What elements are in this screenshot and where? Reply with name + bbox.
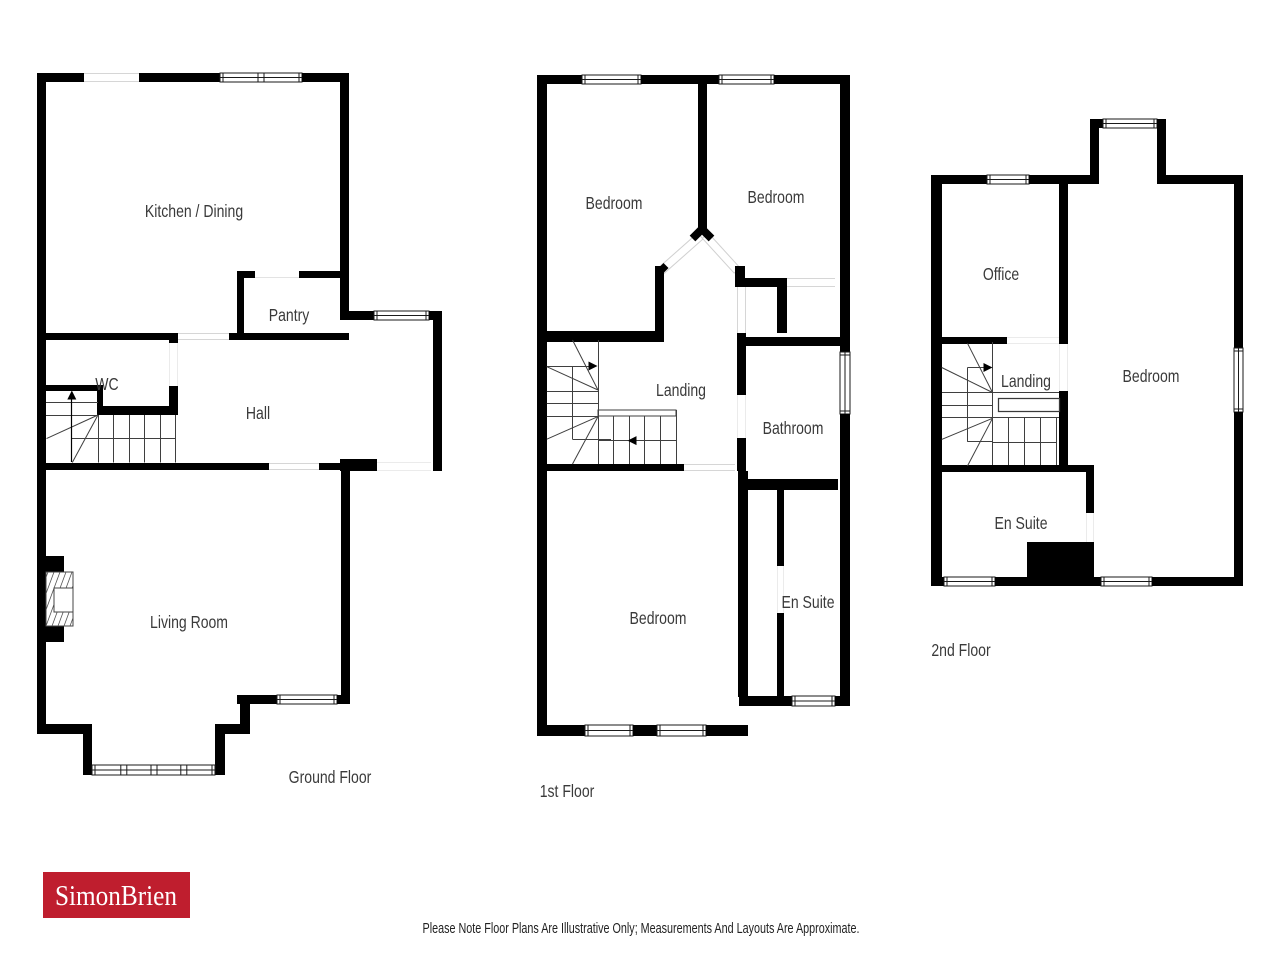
svg-text:Landing: Landing (656, 380, 706, 400)
svg-text:Landing: Landing (1001, 371, 1051, 391)
svg-text:Office: Office (983, 264, 1019, 284)
svg-text:Hall: Hall (246, 403, 270, 423)
svg-text:Living Room: Living Room (150, 612, 228, 632)
svg-text:Pantry: Pantry (269, 305, 310, 325)
svg-text:Ground Floor: Ground Floor (289, 767, 372, 787)
svg-text:Kitchen / Dining: Kitchen / Dining (145, 201, 243, 221)
svg-text:1st Floor: 1st Floor (540, 781, 595, 801)
svg-text:Please Note Floor Plans Are Il: Please Note Floor Plans Are Illustrative… (423, 920, 860, 937)
svg-text:WC: WC (95, 374, 119, 394)
svg-text:Bedroom: Bedroom (630, 608, 687, 628)
svg-text:Bedroom: Bedroom (748, 187, 805, 207)
svg-text:Bedroom: Bedroom (586, 193, 643, 213)
svg-text:En Suite: En Suite (781, 592, 834, 612)
svg-text:SimonBrien: SimonBrien (55, 881, 177, 912)
svg-text:Bathroom: Bathroom (763, 418, 824, 438)
svg-text:Bedroom: Bedroom (1123, 366, 1180, 386)
svg-text:2nd Floor: 2nd Floor (931, 640, 991, 660)
svg-text:En Suite: En Suite (994, 513, 1047, 533)
